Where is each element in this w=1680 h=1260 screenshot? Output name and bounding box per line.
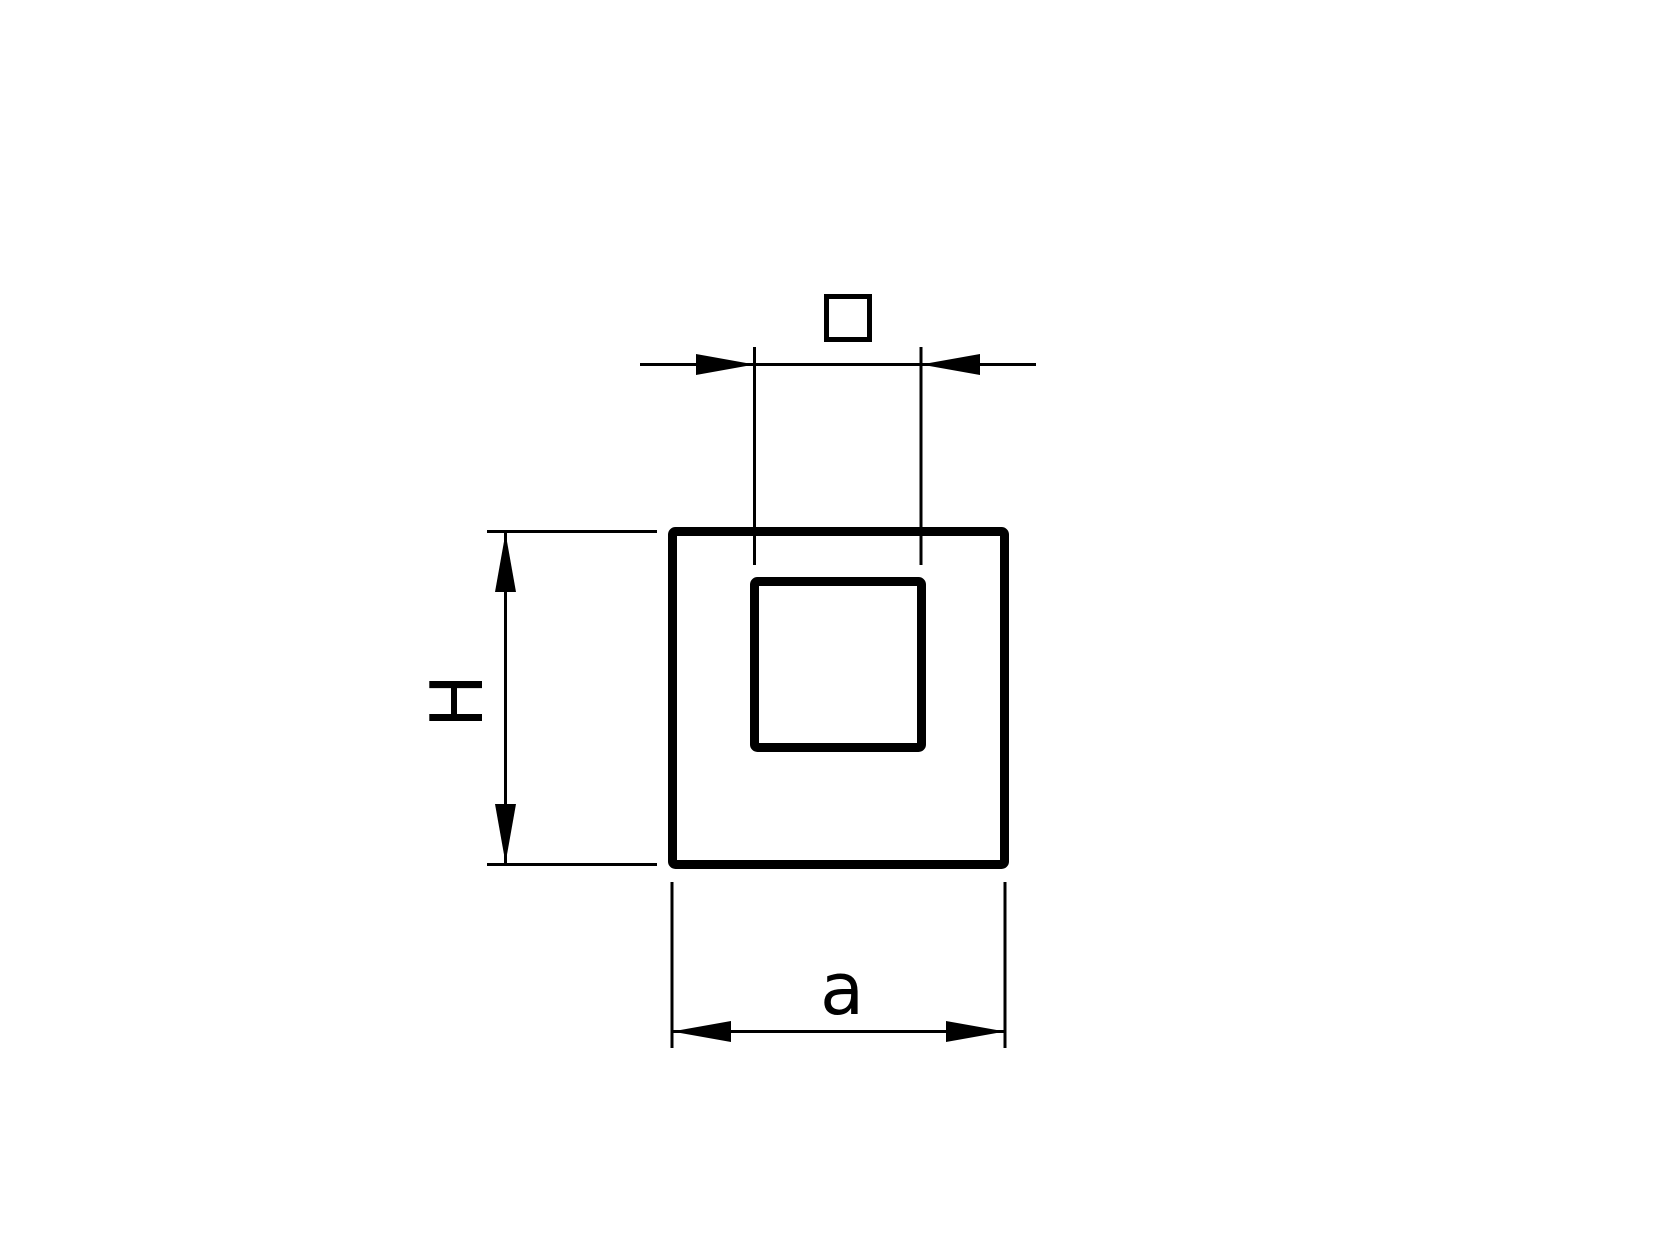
height-arrowhead-top — [495, 533, 516, 592]
inner-square-hole — [755, 582, 922, 748]
outer-width-arrowhead-right — [946, 1021, 1005, 1042]
height-arrowhead-bottom — [495, 804, 516, 863]
cross-section — [673, 532, 1005, 865]
inner-width-dimension — [640, 297, 1036, 566]
width-dimension-label: a — [820, 947, 864, 1031]
technical-drawing: H a — [0, 0, 1680, 1260]
inner-width-arrowhead-right — [921, 354, 980, 375]
height-dimension-label: H — [415, 674, 499, 728]
outer-width-arrowhead-left — [672, 1021, 731, 1042]
outer-width-dimension: a — [672, 882, 1005, 1048]
inner-width-arrowhead-left — [696, 354, 755, 375]
drawing-canvas: H a — [0, 0, 1680, 1260]
height-dimension: H — [415, 532, 657, 865]
square-symbol-icon — [827, 297, 870, 340]
